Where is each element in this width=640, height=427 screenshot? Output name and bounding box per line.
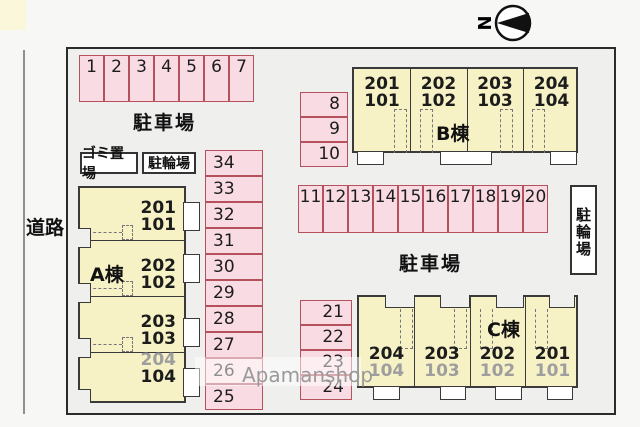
- parking-space: 16: [423, 185, 448, 233]
- parking-space: 27: [205, 332, 263, 358]
- parking-space: 9: [300, 117, 348, 142]
- parking-space: 13: [348, 185, 373, 233]
- parking-space: 32: [205, 202, 263, 228]
- parking-space: 12: [323, 185, 348, 233]
- stairs-dashed: [535, 309, 548, 349]
- unit-divider: [80, 240, 184, 241]
- wall-notch: [385, 295, 415, 308]
- building-b-name: B棟: [436, 119, 469, 146]
- parking-area-label-top: 駐車場: [133, 108, 196, 135]
- stairs-dashed: [394, 109, 407, 153]
- bicycle-parking-box-right: 駐輪場: [570, 185, 597, 275]
- unit-label-a1: 201101: [80, 200, 176, 234]
- unit-label-b4: 204104: [523, 76, 580, 110]
- entry-porch: [357, 151, 384, 165]
- parking-space: 2: [104, 55, 129, 102]
- corner-mark: [0, 0, 26, 30]
- parking-space: 31: [205, 228, 263, 254]
- building-b: 201101 202102 203103 204104 B棟: [352, 67, 578, 153]
- building-c: C棟 204104 203103 202102 201101: [357, 295, 578, 388]
- unit-label-c3: 202102: [470, 346, 525, 380]
- unit-label-c2: 203103: [414, 346, 470, 380]
- parking-space: 15: [398, 185, 423, 233]
- parking-space: 30: [205, 254, 263, 280]
- garbage-area-box: ゴミ置場: [80, 152, 138, 174]
- unit-label-a4: 204104: [80, 352, 176, 386]
- parking-space: 29: [205, 280, 263, 306]
- stairs-dashed: [400, 309, 413, 349]
- unit-label-c4: 201101: [525, 346, 580, 380]
- entry-porch: [183, 318, 200, 347]
- parking-space: 4: [154, 55, 179, 102]
- wall-notch: [440, 295, 470, 308]
- parking-space: 10: [300, 142, 348, 167]
- entry-porch: [495, 386, 522, 400]
- parking-space: 11: [298, 185, 323, 233]
- parking-space: 22: [300, 325, 352, 350]
- entry-porch: [183, 254, 200, 283]
- parking-space: 1: [79, 55, 104, 102]
- wall-notch: [78, 389, 91, 403]
- wall-notch: [549, 295, 575, 308]
- entry-porch: [440, 386, 466, 400]
- unit-divider: [80, 296, 184, 297]
- parking-space: 21: [300, 300, 352, 325]
- parking-space: 3: [129, 55, 154, 102]
- wall-notch: [78, 228, 91, 248]
- parking-space: 34: [205, 150, 263, 176]
- parking-space: 7: [229, 55, 254, 102]
- wall-notch: [78, 338, 91, 358]
- parking-space: 25: [205, 384, 263, 410]
- entry-porch: [373, 386, 400, 400]
- building-a: 201101 A棟 202102 203103 204104: [78, 186, 186, 403]
- compass-n-label: N: [473, 15, 494, 30]
- bicycle-parking-box-left: 駐輪場: [142, 152, 196, 174]
- stairs-dashed: [454, 309, 467, 349]
- entry-porch: [440, 151, 492, 165]
- wall-notch: [78, 283, 91, 303]
- parking-space: 5: [179, 55, 204, 102]
- parking-space: 18: [473, 185, 498, 233]
- entry-porch: [547, 386, 573, 400]
- parking-space: 20: [523, 185, 548, 233]
- unit-label-b1: 201101: [354, 76, 410, 110]
- road-line: [23, 50, 25, 414]
- parking-space: 14: [373, 185, 398, 233]
- parking-space: 33: [205, 176, 263, 202]
- unit-label-b3: 203103: [467, 76, 523, 110]
- unit-label-b2: 202102: [410, 76, 467, 110]
- unit-label-a3: 203103: [80, 314, 176, 348]
- parking-area-label-mid: 駐車場: [399, 249, 462, 276]
- parking-space: 8: [300, 92, 348, 117]
- stairs-dashed: [532, 109, 545, 153]
- entry-porch: [550, 151, 577, 165]
- unit-label-a2: 202102: [80, 258, 176, 292]
- parking-space: 6: [204, 55, 229, 102]
- site-plan: N 道路 1 2 3 4 5 6 7 駐車場 ゴミ置場 駐輪場 201101 A…: [0, 0, 640, 427]
- stairs-dashed: [420, 109, 433, 153]
- compass-north-icon: N: [468, 1, 540, 47]
- road-label: 道路: [26, 213, 64, 240]
- parking-space: 19: [498, 185, 523, 233]
- parking-space: 28: [205, 306, 263, 332]
- wall-notch: [496, 295, 524, 308]
- entry-porch: [183, 202, 200, 231]
- parking-space: 17: [448, 185, 473, 233]
- stairs-dashed: [500, 109, 513, 153]
- watermark: Apamanshop: [242, 363, 373, 387]
- building-c-name: C棟: [487, 315, 520, 342]
